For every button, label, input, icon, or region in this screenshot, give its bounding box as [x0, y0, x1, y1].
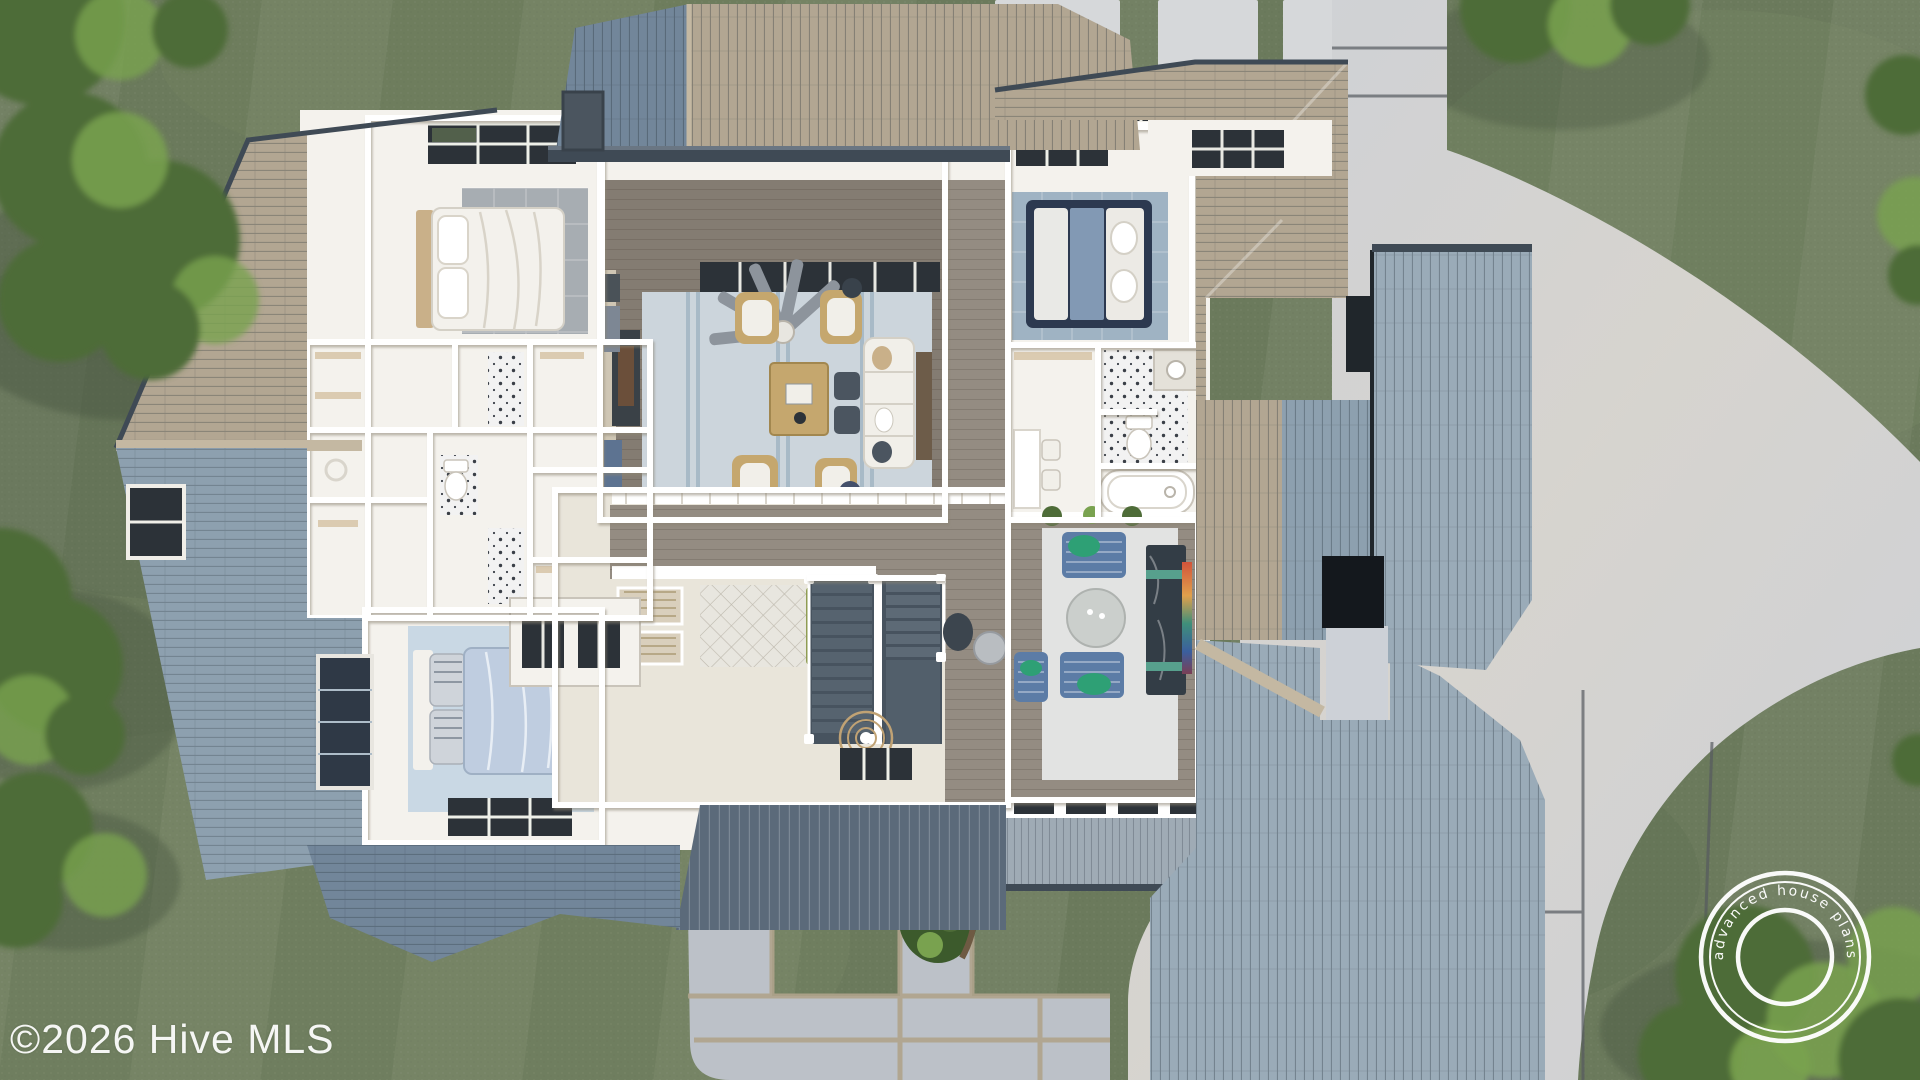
round-side-table	[974, 632, 1006, 664]
clerestory-skylight	[700, 262, 940, 292]
ottoman	[834, 406, 860, 434]
bay-window	[318, 656, 372, 788]
console-table	[916, 352, 932, 460]
staircase	[804, 574, 946, 744]
tv-screen	[1182, 562, 1192, 674]
game-room	[1008, 506, 1198, 800]
round-game-table	[1067, 589, 1125, 647]
mls-watermark: ©2026 Hive MLS	[10, 1016, 335, 1063]
bed-navy	[1026, 200, 1152, 328]
porte-cochere-opening	[1322, 556, 1384, 628]
bath-tile	[488, 528, 524, 604]
wall-art	[604, 440, 622, 492]
chimney	[563, 92, 603, 150]
bed-white	[416, 208, 564, 330]
wall-art	[604, 306, 620, 352]
loveseat-blue	[1060, 652, 1124, 698]
chaise-lounge	[1014, 652, 1048, 702]
wall-art	[604, 274, 620, 302]
tv-media-console	[1146, 545, 1192, 695]
logo-inner-ring	[1738, 910, 1832, 1004]
ottoman	[834, 372, 860, 400]
logo-mid-ring	[1710, 882, 1860, 1032]
aerial-render	[0, 0, 1920, 1080]
bath-tile	[488, 352, 524, 426]
bathtub	[1100, 470, 1194, 514]
listing-photo: ©2026 Hive MLS advanced house plans est.…	[0, 0, 1920, 1080]
skylight	[840, 748, 912, 780]
bathroom-right	[1008, 345, 1200, 520]
sofa	[864, 338, 914, 468]
drive-under	[1326, 626, 1388, 736]
papasan-chair	[943, 613, 973, 651]
toilet	[444, 460, 468, 500]
toilet	[1126, 416, 1152, 459]
loveseat-blue	[1062, 532, 1126, 578]
logo-arc-top-text: advanced house plans	[1711, 883, 1859, 961]
ahp-logo: advanced house plans est. 2002 ahp	[1685, 857, 1885, 1057]
second-floor-interior	[300, 98, 1212, 891]
coffee-table	[770, 363, 828, 435]
side-table	[842, 278, 862, 298]
